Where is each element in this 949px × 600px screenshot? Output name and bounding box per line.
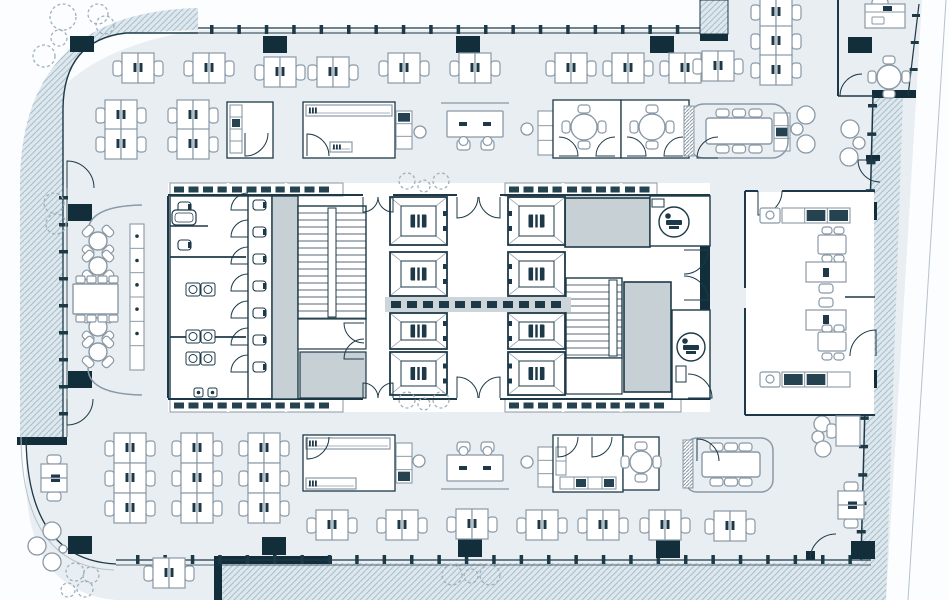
cafe-counter <box>130 224 144 370</box>
cafe-long-table <box>73 276 118 322</box>
janitor-sink <box>172 210 196 225</box>
floor-plan-svg <box>0 0 949 600</box>
single-desk <box>836 416 860 446</box>
floor-plan <box>0 0 949 600</box>
desk-chair <box>827 424 836 438</box>
focus-room-cabinet <box>230 105 242 153</box>
shaft-band <box>385 297 571 312</box>
reception-desk <box>865 0 905 28</box>
